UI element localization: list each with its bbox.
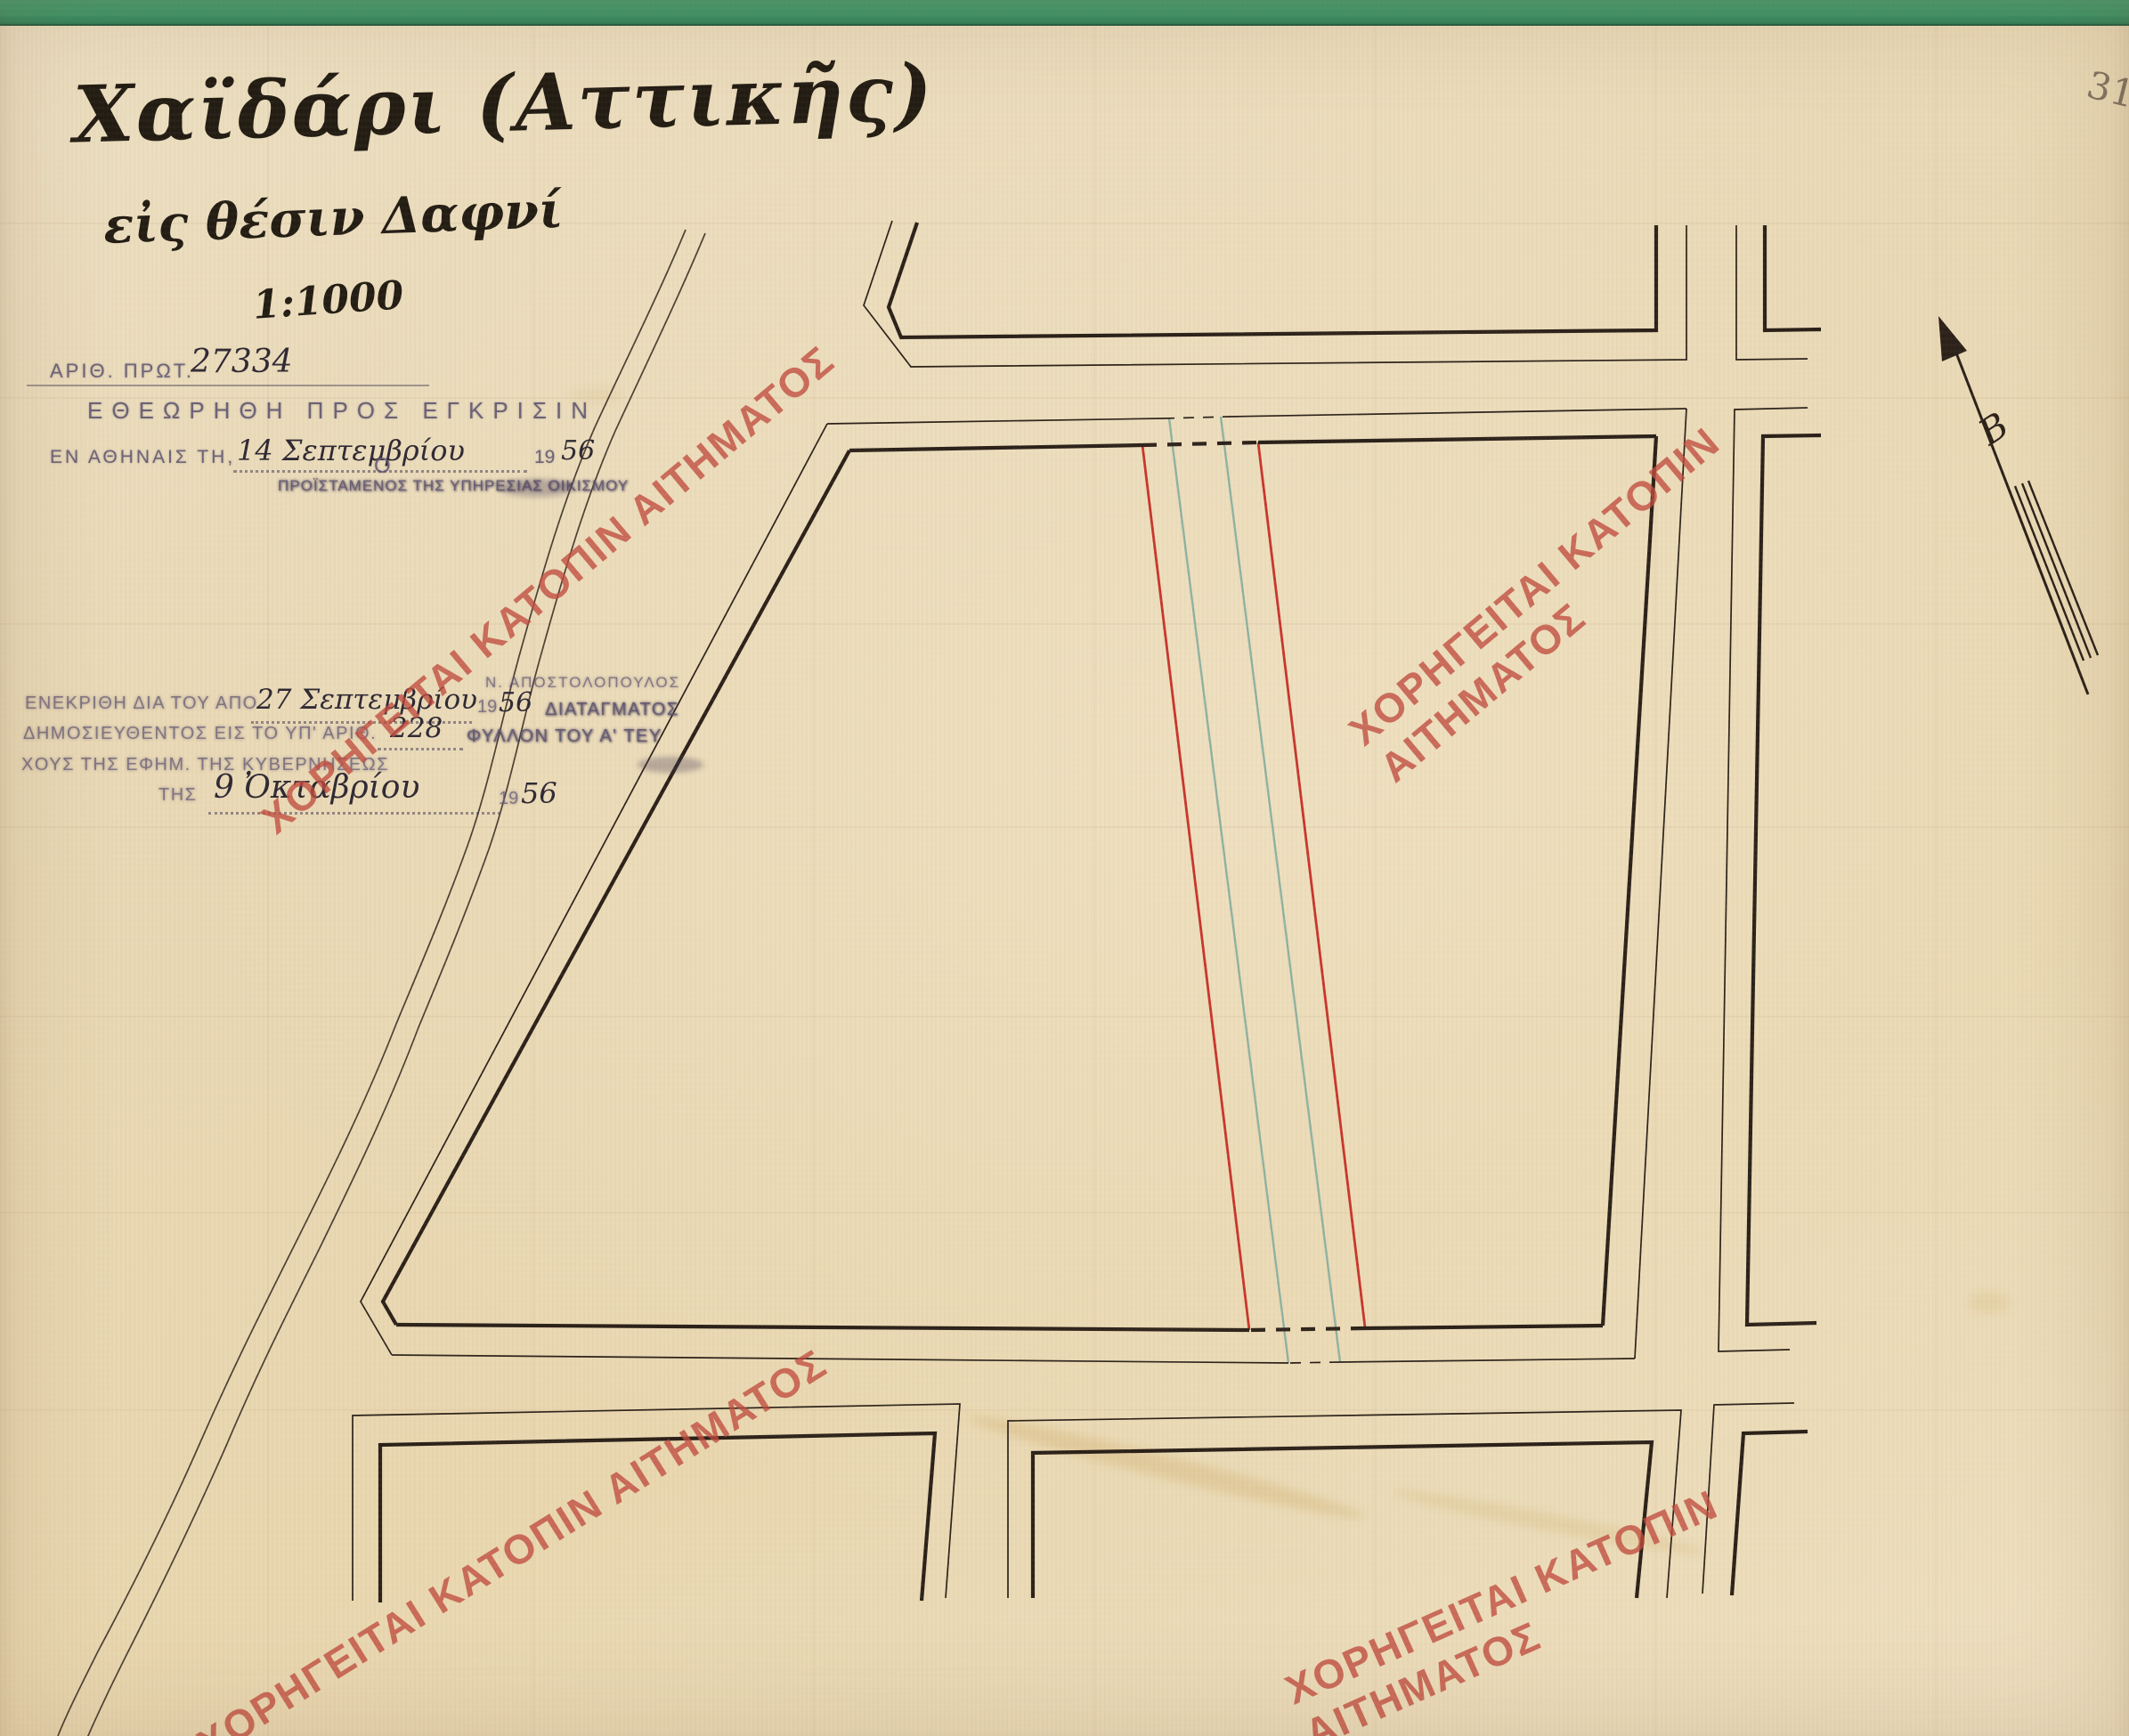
- protocol-number: 27334: [191, 344, 293, 380]
- approval-place-prefix: ΕΝ ΑΘΗΝΑΙΣ ΤΗ,: [50, 447, 235, 468]
- approval-year-printed: 19: [534, 447, 555, 468]
- protocol-underline: [27, 383, 429, 386]
- north-arrow-head: [1938, 316, 1967, 361]
- block-boundary-thick-lines: [380, 223, 1821, 1602]
- decree-gazette-leader: [378, 746, 463, 750]
- decree-pub-year-handwritten: 56: [521, 776, 557, 810]
- decree-gazette-number-handwritten: 228: [390, 712, 443, 744]
- scanned-town-plan-sheet: Β Χαϊδάρι (Αττικῆς) εἰς θέσιν Δαφνί 1:10…: [0, 0, 2129, 1736]
- decree-approved-suffix: ΔΙΑΤΑΓΜΑΤΟΣ: [545, 700, 679, 720]
- street-edge-thin-lines: [353, 221, 1808, 1601]
- ink-smear: [499, 479, 575, 497]
- decree-approved-year-handwritten: 56: [499, 687, 532, 718]
- approval-year-handwritten: 56: [561, 435, 595, 466]
- protocol-label: ΑΡΙΘ. ΠΡΩΤ.: [50, 360, 194, 383]
- plan-drawing: Β: [0, 0, 2129, 1736]
- decree-approved-year-printed: 19: [477, 697, 497, 718]
- approval-stamp-heading: ΕΘΕΩΡΗΘΗ ΠΡΟΣ ΕΓΚΡΙΣΙΝ: [87, 397, 597, 425]
- red-revision-lines: [1142, 442, 1365, 1330]
- decree-published-suffix: ΦΥΛΛΟΝ ΤΟΥ Α' ΤΕΥ: [467, 726, 662, 747]
- decree-approved-prefix: ΕΝΕΚΡΙΘΗ ΔΙΑ ΤΟΥ ΑΠΟ: [25, 694, 258, 714]
- approval-official-title: ΠΡΟΪΣΤΑΜΕΝΟΣ ΤΗΣ ΥΠΗΡΕΣΙΑΣ ΟΙΚΙΣΜΟΥ: [278, 477, 629, 495]
- decree-approved-date-handwritten: 27 Σεπτεμβρίου: [256, 684, 477, 716]
- decree-pub-date-handwritten: 9 Ὀκταβρίου: [214, 769, 419, 806]
- decree-pub-date-leader: [208, 810, 500, 815]
- approval-o-label: Ο: [374, 454, 391, 479]
- approval-date-handwritten: 14 Σεπτεμβρίου: [237, 434, 465, 467]
- decree-published-prefix: ΔΗΜΟΣΙΕΥΘΕΝΤΟΣ ΕΙΣ ΤΟ ΥΠ' ΑΡΙΘ.: [23, 724, 377, 744]
- decree-pub-year-printed: 19: [499, 789, 518, 809]
- teal-prior-alignment-lines: [1169, 417, 1340, 1363]
- north-arrow: Β: [1938, 316, 2098, 694]
- decree-line4-prefix: ΤΗΣ: [158, 785, 198, 806]
- ink-smear: [638, 757, 703, 773]
